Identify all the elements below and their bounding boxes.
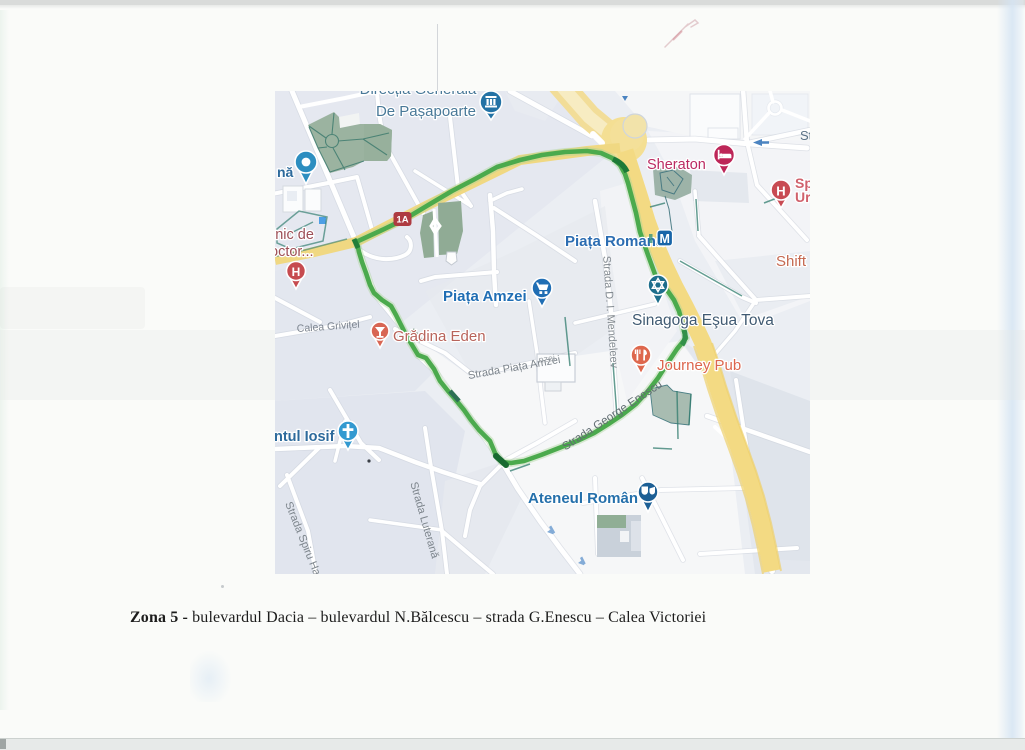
svg-text:H: H	[292, 265, 301, 279]
svg-text:M: M	[659, 232, 669, 246]
svg-text:Direcția Generală: Direcția Generală	[360, 91, 477, 98]
svg-text:De Pașapoarte: De Pașapoarte	[376, 103, 476, 120]
svg-text:Grădina Eden: Grădina Eden	[393, 328, 486, 345]
svg-text:Sheraton: Sheraton	[647, 157, 706, 173]
svg-text:Ur: Ur	[795, 189, 810, 205]
svg-text:St: St	[800, 128, 810, 143]
svg-text:ntul Iosif: ntul Iosif	[275, 429, 335, 445]
svg-text:nă: nă	[277, 164, 294, 180]
svg-text:H: H	[776, 184, 785, 199]
svg-text:Sinagoga Eşua Tova: Sinagoga Eşua Tova	[632, 312, 774, 329]
svg-text:octor...: octor...	[275, 244, 314, 260]
svg-text:Shift: Shift	[776, 253, 807, 270]
svg-text:Ateneul Român: Ateneul Român	[528, 490, 638, 507]
svg-text:Journey Pub: Journey Pub	[657, 357, 741, 374]
svg-text:Piața Amzei: Piața Amzei	[443, 288, 527, 305]
svg-text:inic de: inic de	[275, 227, 314, 243]
svg-text:1A: 1A	[396, 215, 408, 226]
